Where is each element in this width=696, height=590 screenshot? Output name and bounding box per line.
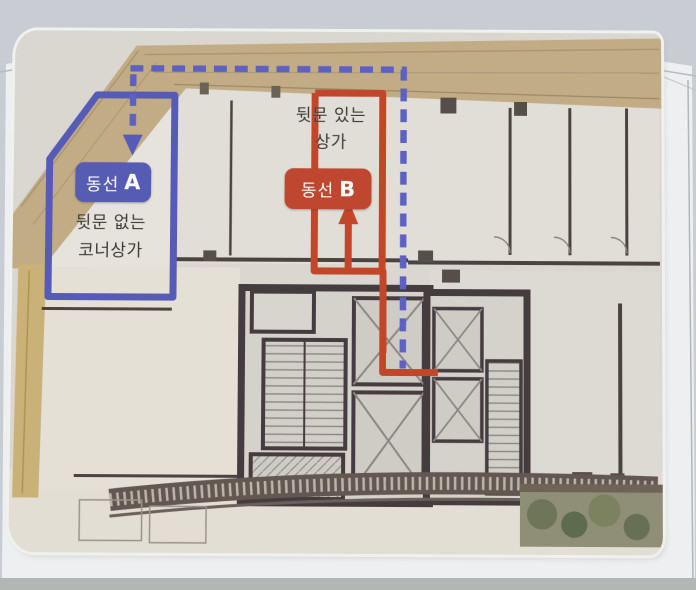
floor-plan-photo: 뒷문 있는 상가 동선 B 동선 A 뒷문 없는 코너상가 [8,30,663,555]
route-b-badge-letter: B [339,177,355,201]
route-b-badge-prefix: 동선 [301,176,334,201]
label-route-b: 뒷문 있는 상가 [279,103,383,157]
route-b-description-line1: 뒷문 있는 [279,103,383,130]
route-a-badge-letter: A [124,170,140,194]
badge-route-b: 동선 B [285,168,372,209]
label-route-a: 뒷문 없는 코너상가 [58,209,162,265]
badge-route-a: 동선 A [75,162,151,202]
shop-units-area [173,88,660,265]
route-a-description-line2: 코너상가 [58,237,162,265]
route-b-description-line2: 상가 [279,129,383,156]
right-core [426,292,527,502]
landscape-trees [520,484,663,547]
route-a-badge-prefix: 동선 [86,170,119,195]
route-a-description-line1: 뒷문 없는 [59,209,163,237]
